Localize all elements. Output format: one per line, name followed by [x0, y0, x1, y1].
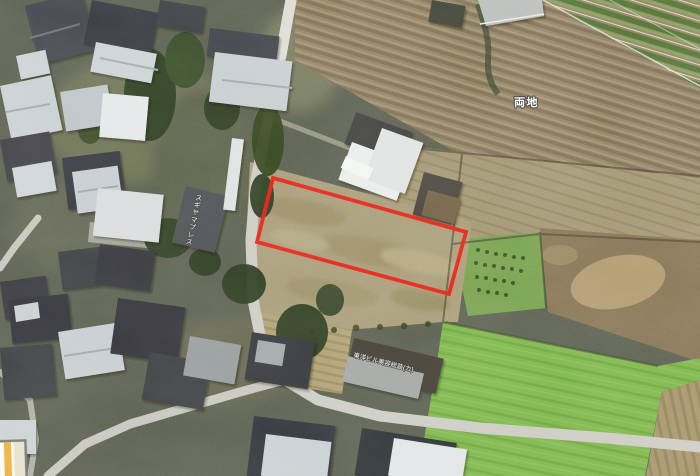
photo-grain-overlay: [0, 0, 700, 476]
satellite-map-viewport[interactable]: 両地 スギヤマプレス 東洋ビル美容総装(カ): [0, 0, 700, 476]
satellite-map-canvas[interactable]: 両地 スギヤマプレス 東洋ビル美容総装(カ): [0, 0, 700, 476]
